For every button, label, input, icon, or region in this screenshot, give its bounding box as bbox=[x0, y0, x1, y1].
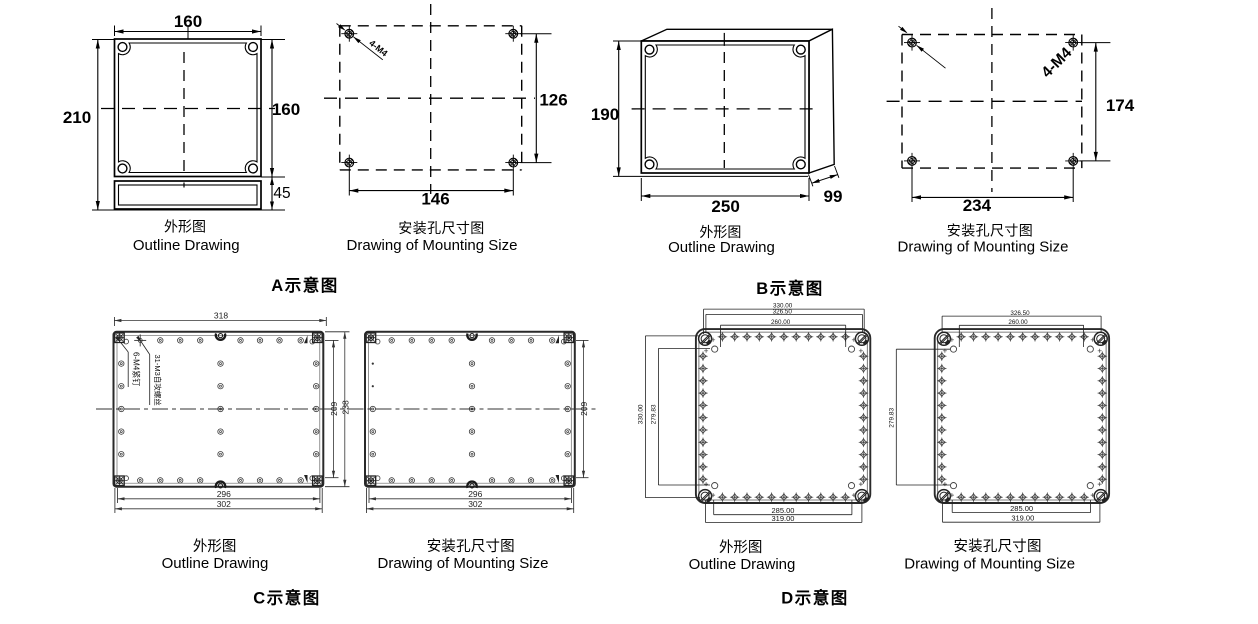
svg-text:外形图: 外形图 bbox=[699, 224, 741, 240]
svg-text:209: 209 bbox=[329, 401, 339, 415]
svg-text:279.83: 279.83 bbox=[650, 404, 657, 424]
svg-text:296: 296 bbox=[217, 489, 231, 499]
svg-text:D示意图: D示意图 bbox=[781, 588, 848, 608]
svg-text:210: 210 bbox=[63, 108, 91, 127]
svg-text:Drawing of Mounting Size: Drawing of Mounting Size bbox=[898, 239, 1069, 256]
svg-text:Outline Drawing: Outline Drawing bbox=[689, 556, 796, 573]
svg-text:160: 160 bbox=[174, 12, 202, 31]
svg-text:279.83: 279.83 bbox=[888, 407, 895, 427]
svg-text:160: 160 bbox=[272, 100, 300, 119]
svg-text:31-M3自攻螺丝: 31-M3自攻螺丝 bbox=[153, 355, 163, 407]
svg-text:146: 146 bbox=[421, 190, 449, 209]
svg-text:B示意图: B示意图 bbox=[756, 278, 823, 298]
svg-text:Drawing of Mounting Size: Drawing of Mounting Size bbox=[347, 237, 518, 254]
svg-text:A示意图: A示意图 bbox=[271, 275, 338, 295]
svg-text:260.00: 260.00 bbox=[1008, 319, 1028, 326]
svg-text:296: 296 bbox=[468, 489, 482, 499]
svg-text:外形图: 外形图 bbox=[193, 538, 237, 555]
svg-text:Outline Drawing: Outline Drawing bbox=[133, 237, 240, 254]
svg-text:285.00: 285.00 bbox=[1010, 504, 1033, 513]
svg-text:安装孔尺寸图: 安装孔尺寸图 bbox=[947, 223, 1033, 239]
svg-text:319.00: 319.00 bbox=[1011, 514, 1034, 523]
svg-text:6-M4紧钉: 6-M4紧钉 bbox=[132, 352, 142, 386]
svg-text:174: 174 bbox=[1106, 96, 1135, 115]
svg-text:326.50: 326.50 bbox=[773, 308, 793, 315]
svg-text:238: 238 bbox=[341, 400, 351, 414]
svg-text:326.50: 326.50 bbox=[1010, 310, 1030, 317]
svg-text:302: 302 bbox=[217, 499, 231, 509]
svg-text:外形图: 外形图 bbox=[719, 539, 763, 556]
svg-text:安装孔尺寸图: 安装孔尺寸图 bbox=[398, 220, 484, 236]
svg-text:209: 209 bbox=[579, 401, 589, 415]
svg-text:Outline Drawing: Outline Drawing bbox=[668, 239, 775, 256]
svg-text:260.00: 260.00 bbox=[771, 319, 791, 326]
svg-text:190: 190 bbox=[591, 105, 619, 124]
svg-text:319.00: 319.00 bbox=[772, 514, 795, 523]
svg-text:C示意图: C示意图 bbox=[253, 588, 320, 608]
svg-text:302: 302 bbox=[468, 499, 482, 509]
svg-text:Drawing of Mounting Size: Drawing of Mounting Size bbox=[378, 555, 549, 572]
svg-text:330.00: 330.00 bbox=[637, 404, 644, 424]
svg-text:99: 99 bbox=[824, 187, 843, 206]
svg-text:250: 250 bbox=[711, 197, 739, 216]
svg-text:234: 234 bbox=[963, 196, 992, 215]
svg-text:126: 126 bbox=[539, 91, 567, 110]
svg-text:安装孔尺寸图: 安装孔尺寸图 bbox=[953, 538, 1041, 555]
svg-text:318: 318 bbox=[214, 311, 228, 321]
svg-text:Drawing of Mounting Size: Drawing of Mounting Size bbox=[904, 556, 1075, 573]
svg-text:45: 45 bbox=[273, 185, 290, 202]
svg-text:Outline Drawing: Outline Drawing bbox=[162, 555, 269, 572]
svg-text:安装孔尺寸图: 安装孔尺寸图 bbox=[427, 538, 515, 555]
svg-text:外形图: 外形图 bbox=[164, 219, 206, 235]
